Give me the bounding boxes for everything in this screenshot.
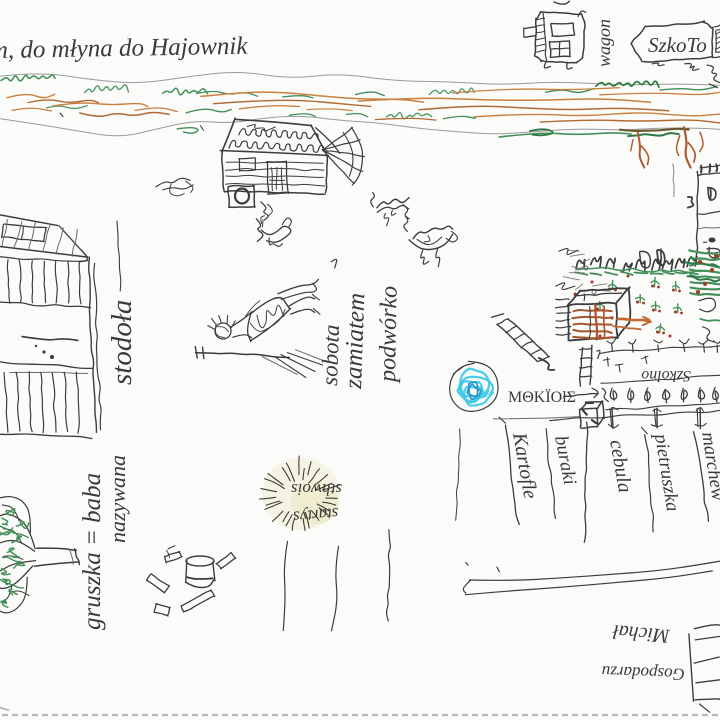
svg-text:Szkolno: Szkolno [641, 367, 691, 384]
svg-text:MΘKЇOłΣ: MΘKЇOłΣ [508, 388, 576, 406]
svg-text:stodoła: stodoła [106, 300, 138, 385]
svg-text:m, do młyna do Hajownik: m, do młyna do Hajownik [0, 33, 249, 65]
svg-text:gruszka = baba: gruszka = baba [79, 473, 106, 630]
svg-text:sthwois: sthwois [291, 480, 342, 499]
svg-text:zamiatem: zamiatem [340, 292, 370, 390]
svg-text:Gospodarzu: Gospodarzu [601, 662, 685, 684]
svg-text:startys: startys [292, 504, 339, 527]
svg-text:SzkoTo: SzkoTo [648, 33, 707, 57]
svg-text:podwórko: podwórko [375, 286, 403, 384]
svg-text:wagon: wagon [594, 19, 614, 67]
svg-text:nazywana: nazywana [105, 455, 130, 543]
